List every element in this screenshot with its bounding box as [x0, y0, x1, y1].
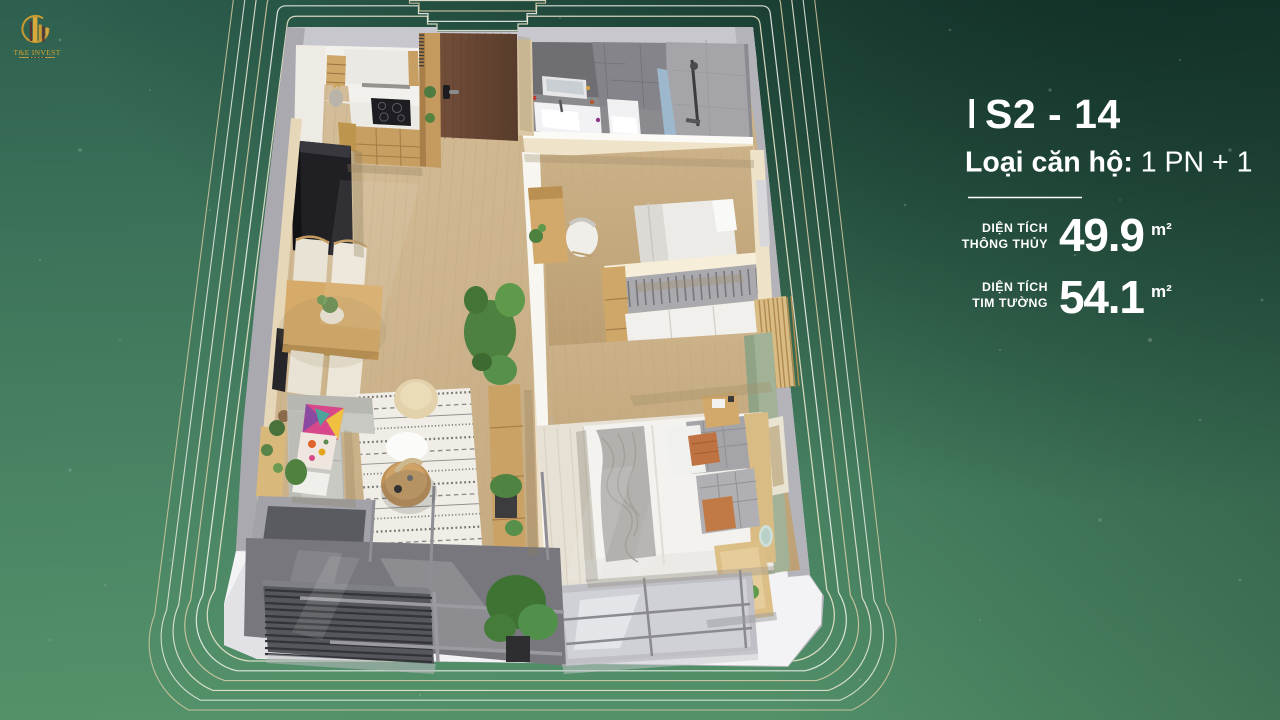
svg-text:DIỆN TÍCH: DIỆN TÍCH [982, 220, 1048, 235]
svg-text:T&E INVEST: T&E INVEST [13, 48, 60, 57]
svg-text:m²: m² [1151, 282, 1172, 301]
svg-text:S2 - 14: S2 - 14 [985, 91, 1121, 137]
svg-text:Loại căn hộ: 1 PN + 1: Loại căn hộ: 1 PN + 1 [965, 147, 1252, 179]
svg-text:DIỆN TÍCH: DIỆN TÍCH [982, 279, 1048, 294]
svg-text:49.9: 49.9 [1059, 209, 1144, 261]
svg-text:m²: m² [1151, 220, 1172, 239]
svg-text:TIM TƯỜNG: TIM TƯỜNG [972, 295, 1048, 310]
svg-text:54.1: 54.1 [1059, 271, 1144, 323]
svg-text:THÔNG THỦY: THÔNG THỦY [962, 236, 1048, 251]
